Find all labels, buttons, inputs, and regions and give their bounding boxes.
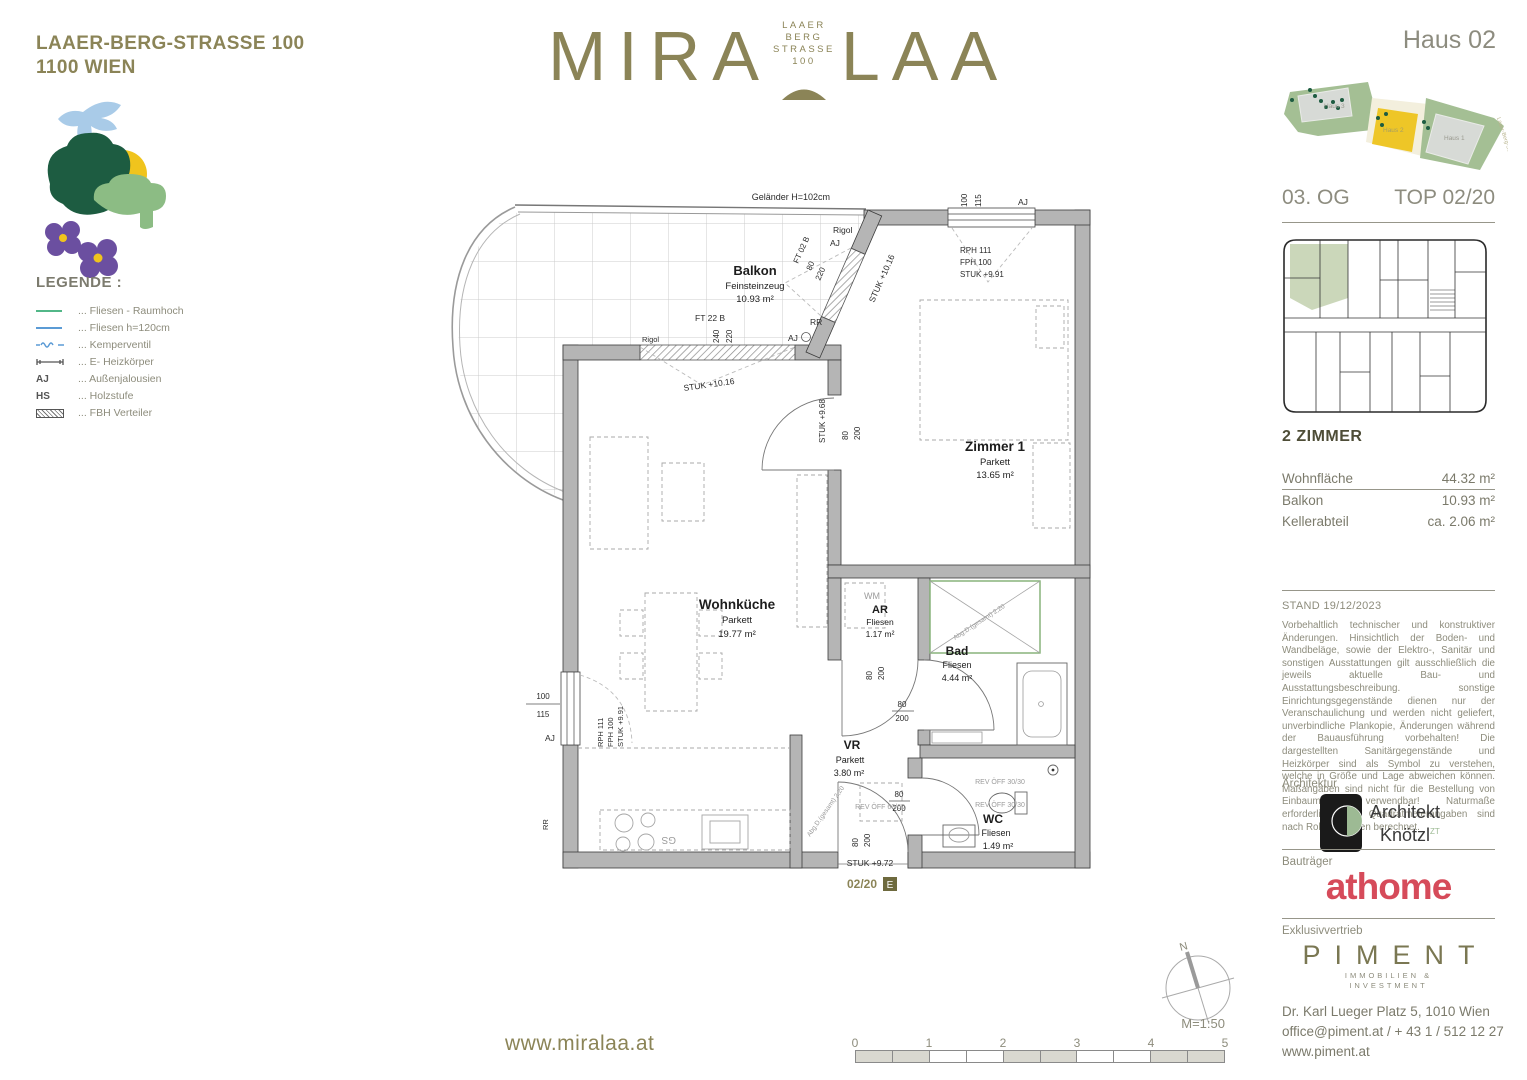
detail-label: Balkon: [1282, 493, 1323, 508]
miralaa-website[interactable]: www.miralaa.at: [505, 1032, 654, 1056]
floor-plan: Geländer H=102cm: [440, 185, 1120, 935]
svg-text:3.80 m²: 3.80 m²: [834, 768, 865, 778]
contact-email-phone[interactable]: office@piment.at / + 43 1 / 512 12 27: [1282, 1022, 1522, 1042]
contact-website[interactable]: www.piment.at: [1282, 1042, 1522, 1062]
svg-text:RPH 111: RPH 111: [960, 246, 992, 255]
svg-text:RPH 111: RPH 111: [596, 718, 605, 747]
svg-text:Rigol: Rigol: [833, 225, 852, 235]
divider: [1282, 222, 1495, 223]
svg-text:VR: VR: [844, 738, 861, 752]
logo-middle: LAAER BERG STRASSE 100: [773, 20, 835, 100]
north-label: N: [1178, 940, 1189, 954]
svg-text:200: 200: [853, 426, 862, 440]
architekt-name-1: Architekt: [1370, 802, 1440, 822]
site-haus2-label: Haus 2: [1383, 127, 1404, 134]
legend: LEGENDE : ... Fliesen - Raumhoch ... Fli…: [36, 274, 256, 422]
legend-item: HS ... Holzstufe: [36, 388, 256, 404]
hs-symbol: HS: [36, 391, 70, 402]
divider: [1282, 770, 1495, 771]
unit-details: Wohnfläche 44.32 m² Balkon 10.93 m² Kell…: [1282, 468, 1495, 532]
architekt-logo: Architekt KnötzlZT: [1320, 794, 1495, 852]
radiator-icon: [36, 358, 70, 366]
tiles-120cm-line-icon: [36, 327, 70, 329]
detail-value: ca. 2.06 m²: [1427, 514, 1495, 529]
address-line2: 1100 WIEN: [36, 56, 305, 80]
svg-text:115: 115: [974, 194, 983, 207]
athome-logo: athome: [1282, 866, 1495, 908]
zt-sup: ZT: [1430, 827, 1440, 836]
svg-text:80: 80: [898, 700, 907, 709]
svg-text:200: 200: [877, 666, 886, 680]
valve-wave-icon: [36, 341, 70, 349]
svg-text:AJ: AJ: [830, 238, 840, 248]
svg-text:Feinsteinzeug: Feinsteinzeug: [725, 281, 784, 292]
scale-cells: [855, 1050, 1225, 1063]
logo-laa: LAA: [841, 16, 1009, 96]
unit-marker: 02/20 E: [847, 877, 897, 891]
svg-text:RR: RR: [810, 317, 822, 327]
aj-symbol: AJ: [36, 374, 70, 385]
top-label: TOP 02/20: [1282, 186, 1495, 210]
piment-wordmark: PIMENT: [1296, 940, 1495, 971]
detail-row: Wohnfläche 44.32 m²: [1282, 468, 1495, 490]
svg-text:Abg.D.(gesamt) 2,20: Abg.D.(gesamt) 2,20: [806, 785, 846, 838]
svg-text:REV ÖFF 30/30: REV ÖFF 30/30: [975, 778, 1025, 786]
detail-row: Kellerabteil ca. 2.06 m²: [1282, 511, 1495, 532]
svg-text:Fliesen: Fliesen: [981, 828, 1010, 838]
detail-label: Wohnfläche: [1282, 471, 1353, 486]
legend-item: ... FBH Verteiler: [36, 405, 256, 421]
svg-text:Wohnküche: Wohnküche: [699, 597, 776, 612]
svg-text:4.44 m²: 4.44 m²: [942, 673, 973, 683]
divider: [1282, 918, 1495, 919]
scale-ratio: M=1:50: [1145, 1016, 1225, 1031]
site-haus1-label: Haus 1: [1444, 135, 1465, 142]
flower-icon: [78, 239, 118, 278]
svg-text:Zimmer 1: Zimmer 1: [965, 439, 1026, 454]
legend-title: LEGENDE :: [36, 274, 256, 291]
svg-text:AJ: AJ: [545, 733, 555, 743]
divider: [1282, 849, 1495, 850]
svg-text:100: 100: [960, 193, 969, 207]
unit-number: 02/20: [847, 877, 877, 891]
svg-text:STUK +9.91: STUK +9.91: [616, 706, 625, 747]
piment-sub2: INVESTMENT: [1282, 981, 1495, 991]
svg-text:Balkon: Balkon: [733, 263, 776, 278]
dishwasher-label: GS: [661, 834, 676, 845]
unit-title: 2 ZIMMER: [1282, 428, 1362, 446]
stand-date: STAND 19/12/2023: [1282, 600, 1381, 612]
nature-illustration: [28, 84, 238, 284]
legend-item: AJ ... Außenjalousien: [36, 371, 256, 387]
fbh-box-icon: [36, 409, 70, 418]
unit-letter: E: [887, 880, 894, 891]
svg-text:Parkett: Parkett: [836, 755, 865, 765]
railing-label: Geländer H=102cm: [752, 192, 830, 202]
legend-item: ... Fliesen h=120cm: [36, 320, 256, 336]
svg-text:80: 80: [895, 790, 904, 799]
piment-sub1: IMMOBILIEN &: [1282, 971, 1495, 981]
svg-text:100: 100: [536, 692, 550, 701]
contact-block: Dr. Karl Lueger Platz 5, 1010 Wien offic…: [1282, 1002, 1522, 1062]
svg-text:115: 115: [537, 710, 550, 719]
svg-text:REV ÖFF 30/30: REV ÖFF 30/30: [975, 801, 1025, 809]
svg-text:FT 22 B: FT 22 B: [695, 313, 725, 323]
detail-value: 44.32 m²: [1442, 471, 1495, 486]
svg-text:AJ: AJ: [788, 333, 798, 343]
svg-text:Parkett: Parkett: [722, 615, 752, 626]
contact-address: Dr. Karl Lueger Platz 5, 1010 Wien: [1282, 1002, 1522, 1022]
detail-row: Balkon 10.93 m²: [1282, 490, 1495, 511]
svg-text:10.93 m²: 10.93 m²: [736, 294, 774, 305]
address-line1: LAAER-BERG-STRASSE 100: [36, 32, 305, 56]
svg-text:220: 220: [725, 329, 734, 343]
legend-item: ... E- Heizkörper: [36, 354, 256, 370]
hill-icon: [782, 88, 826, 100]
svg-text:1.17 m²: 1.17 m²: [866, 629, 895, 639]
flower-icon: [45, 221, 81, 256]
svg-text:STUK +9.68: STUK +9.68: [818, 399, 827, 443]
svg-text:Parkett: Parkett: [980, 457, 1010, 468]
site-plan: Haus 3 Haus 2 Haus 1 Laaer-Berg-Straße 1…: [1278, 70, 1508, 180]
svg-text:80: 80: [851, 838, 860, 847]
piment-logo: PIMENT IMMOBILIEN & INVESTMENT: [1282, 940, 1495, 991]
svg-text:STUK +9.72: STUK +9.72: [847, 858, 894, 868]
architekt-name-2: KnötzlZT: [1370, 822, 1440, 845]
scale-bar: 0 1 2 3 4 5: [855, 1036, 1225, 1062]
svg-text:19.77 m²: 19.77 m²: [718, 629, 756, 640]
svg-text:Bad: Bad: [946, 644, 969, 658]
svg-text:Fliesen: Fliesen: [866, 617, 894, 627]
detail-value: 10.93 m²: [1442, 493, 1495, 508]
svg-text:13.65 m²: 13.65 m²: [976, 470, 1014, 481]
floor-overview-plan: [1280, 232, 1500, 422]
miralaa-logo: MIRA LAAER BERG STRASSE 100 LAA: [548, 16, 1009, 100]
svg-text:1.49 m²: 1.49 m²: [983, 841, 1014, 851]
exklusiv-label: Exklusivvertrieb: [1282, 925, 1363, 937]
svg-text:REV ÖFF 60/60: REV ÖFF 60/60: [855, 803, 905, 811]
svg-text:AR: AR: [872, 604, 888, 616]
site-haus3-label: Haus 3: [1324, 103, 1345, 110]
architekt-mark-icon: [1320, 794, 1362, 852]
architektur-label: Architektur: [1282, 778, 1337, 790]
svg-text:STUK +10.16: STUK +10.16: [867, 253, 897, 304]
svg-text:Rigol: Rigol: [642, 335, 659, 344]
legend-item: ... Kemperventil: [36, 337, 256, 353]
project-address: LAAER-BERG-STRASSE 100 1100 WIEN: [36, 32, 305, 80]
logo-mira: MIRA: [548, 16, 771, 96]
tiles-full-height-line-icon: [36, 310, 70, 312]
kitchen-fixtures: [615, 813, 748, 851]
svg-text:80: 80: [841, 431, 850, 440]
svg-text:WM: WM: [864, 591, 880, 601]
svg-text:200: 200: [863, 833, 872, 847]
page: { "brand": { "address1": "LAAER-BERG-STR…: [0, 0, 1527, 1080]
scale-ticks: 0 1 2 3 4 5: [855, 1036, 1225, 1050]
svg-text:Fliesen: Fliesen: [942, 660, 971, 670]
svg-text:Abg.D.(gesamt) 2,20: Abg.D.(gesamt) 2,20: [952, 603, 1006, 642]
svg-text:240: 240: [712, 329, 721, 343]
svg-text:FPH 100: FPH 100: [960, 258, 992, 267]
highlighted-unit: [1290, 244, 1348, 310]
detail-label: Kellerabteil: [1282, 514, 1349, 529]
svg-text:FPH 100: FPH 100: [606, 717, 615, 747]
svg-text:RR: RR: [541, 819, 550, 830]
legend-item: ... Fliesen - Raumhoch: [36, 303, 256, 319]
svg-text:80: 80: [865, 671, 874, 680]
svg-text:WC: WC: [983, 812, 1003, 826]
svg-text:AJ: AJ: [1018, 197, 1028, 207]
svg-text:STUK +9.91: STUK +9.91: [960, 270, 1004, 279]
haus-title: Haus 02: [1280, 26, 1496, 55]
divider: [1282, 590, 1495, 591]
svg-text:200: 200: [895, 714, 909, 723]
